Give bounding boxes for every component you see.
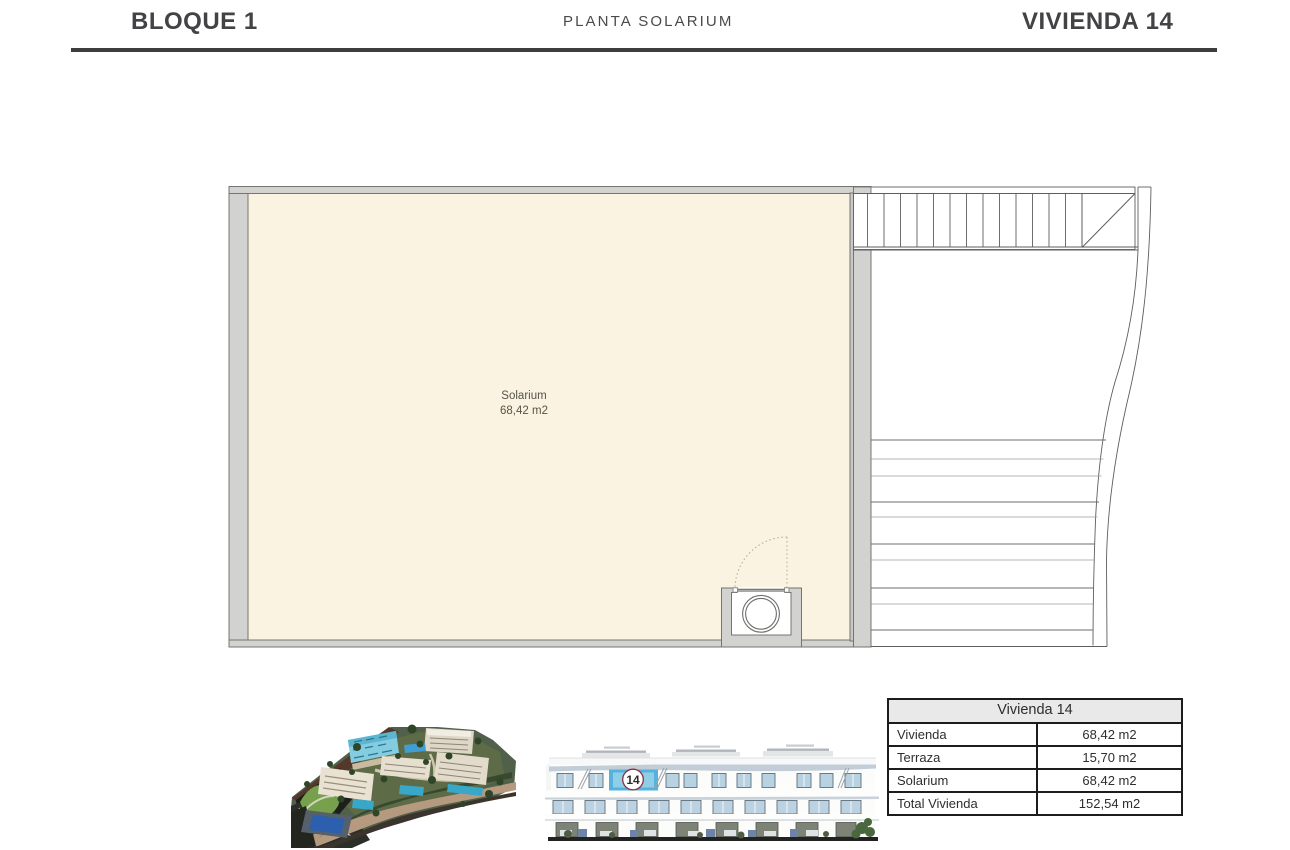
svg-text:Solarium: Solarium (501, 390, 546, 402)
svg-text:14: 14 (626, 773, 640, 787)
svg-text:68,42 m2: 68,42 m2 (500, 405, 548, 417)
